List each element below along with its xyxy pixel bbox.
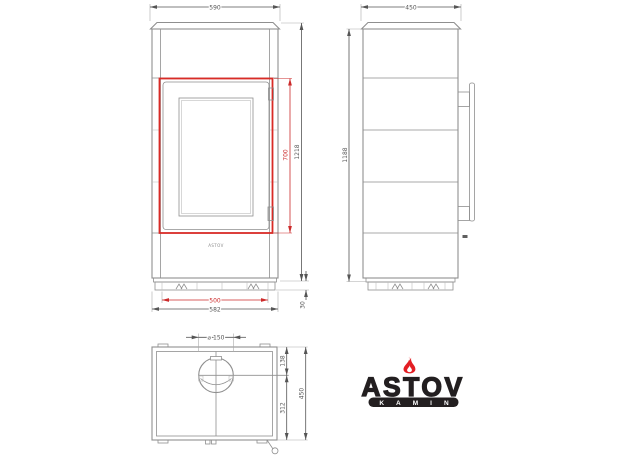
dim-base-height-label: 30 (300, 301, 307, 309)
handle-bracket-top (458, 92, 470, 107)
base-strip (366, 278, 455, 282)
plinth-brand-label: ASTOV (208, 243, 224, 248)
side-view: 450 1188 (342, 4, 475, 290)
center-foot (212, 440, 217, 444)
dim-depth-label: 450 (405, 4, 417, 11)
dim-back-to-flue-label: 138 (280, 355, 287, 367)
dim-total-height-label: 1218 (294, 144, 301, 159)
top-plate (362, 23, 461, 30)
logo-subtitle-text: KAMIN (379, 400, 460, 407)
door-handle-stem (267, 440, 273, 449)
door-glass (179, 98, 253, 216)
dim-feet-span-label: 500 (209, 297, 221, 304)
stove-body-outline (152, 29, 278, 278)
top-view-outline (152, 347, 277, 440)
damper-mark (463, 235, 468, 238)
flue-notch (211, 357, 222, 361)
door-outline-red (160, 79, 273, 234)
foot-left (392, 284, 403, 289)
center-foot (206, 440, 211, 444)
dim-flue-to-front-label: 312 (280, 402, 287, 414)
handle-bracket-bottom (458, 207, 470, 221)
door-glass-inner (182, 101, 251, 214)
front-view: 590 ASTOV 500 582 700 (150, 4, 309, 313)
extension-line (276, 23, 309, 290)
top-view: ⌀ 150 138 312 450 (152, 334, 308, 454)
top-view-inner-wall (157, 352, 273, 437)
panel-joint-line (152, 130, 278, 182)
dim-top-depth-label: 450 (299, 388, 306, 400)
feet-row (368, 282, 453, 290)
dim-body-height-label: 1188 (342, 147, 349, 162)
dim-door-height-label: 700 (282, 149, 289, 161)
top-plate (151, 23, 280, 30)
foot-left (176, 284, 187, 289)
handle-bar (470, 83, 475, 221)
dim-top-width-label: 590 (209, 4, 221, 11)
dim-flue-diameter-label: ⌀ 150 (208, 335, 225, 342)
foot-right (248, 284, 259, 289)
brand-logo: ASTOV KAMIN (361, 357, 464, 408)
foot-right (428, 284, 439, 289)
stove-technical-drawing: 590 ASTOV 500 582 700 (0, 0, 624, 460)
base-strip (154, 278, 277, 282)
dim-base-width-label: 582 (209, 306, 221, 313)
panel-joint-line (152, 78, 278, 233)
panel-joint-line (363, 78, 458, 233)
door-handle-knob (272, 448, 278, 454)
stove-body-outline (363, 29, 458, 278)
